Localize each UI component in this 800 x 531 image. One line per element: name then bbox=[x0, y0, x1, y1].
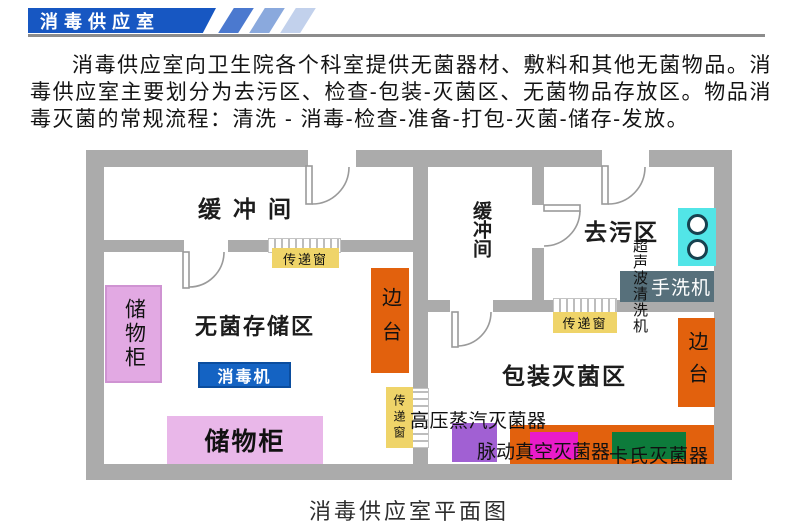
side-table-right: 边台 bbox=[678, 318, 715, 407]
banner-stripe-icon bbox=[280, 8, 316, 33]
wall-inner-a bbox=[104, 240, 184, 252]
floor-plan: 缓冲间 缓冲间 去污区 无菌存储区 包装灭菌区 储物柜 储物柜 消毒机 边台 边… bbox=[86, 150, 732, 480]
banner-stripe-icon bbox=[249, 8, 285, 33]
pass-window-top: 传递窗 bbox=[272, 248, 339, 268]
door-leaf bbox=[306, 166, 312, 204]
door-arc bbox=[458, 312, 491, 346]
pass-window-hatch bbox=[553, 298, 617, 313]
wall-top-segment bbox=[86, 150, 308, 167]
room-label-packing-sterilization: 包装灭菌区 bbox=[502, 357, 627, 391]
wall-left bbox=[86, 150, 104, 480]
banner-stripe-icon bbox=[218, 8, 254, 33]
ultrasonic-cleaner-unit bbox=[678, 208, 716, 266]
sink-basin-icon bbox=[687, 214, 708, 235]
autoclave-label: 高压蒸汽灭菌器 bbox=[410, 406, 547, 433]
room-label-buffer-mid: 缓冲间 bbox=[470, 201, 490, 279]
room-label-buffer-top: 缓冲间 bbox=[198, 190, 303, 224]
pass-window-vertical: 传递窗 bbox=[386, 387, 413, 448]
door-leaf bbox=[544, 205, 580, 211]
ultrasonic-cleaner-label: 超声波清洗机 bbox=[632, 238, 647, 393]
header-banner: 消毒供应室 bbox=[28, 8, 216, 33]
door-leaf bbox=[452, 312, 458, 347]
disinfector-machine: 消毒机 bbox=[198, 362, 291, 388]
sink-basin-icon bbox=[687, 239, 708, 260]
side-table-left: 边台 bbox=[371, 268, 409, 373]
page: 消毒供应室 消毒供应室向卫生院各个科室提供无菌器材、敷料和其他无菌物品。消毒供应… bbox=[0, 0, 800, 531]
storage-cabinet-bottom: 储物柜 bbox=[167, 416, 323, 464]
wall-inner-b bbox=[428, 300, 450, 312]
wall-top-segment bbox=[356, 150, 602, 167]
pulse-vacuum-sterilizer-label: 脉动真空灭菌器 bbox=[477, 437, 610, 464]
door-arc bbox=[608, 167, 645, 204]
intro-paragraph: 消毒供应室向卫生院各个科室提供无菌器材、敷料和其他无菌物品。消毒供应室主要划分为… bbox=[30, 52, 772, 133]
page-title: 消毒供应室 bbox=[40, 8, 160, 34]
room-label-sterile-storage: 无菌存储区 bbox=[195, 309, 315, 341]
wall-corridor-right bbox=[532, 167, 544, 205]
wall-inner-b bbox=[493, 300, 553, 312]
pass-window-mid: 传递窗 bbox=[553, 312, 617, 333]
cassette-sterilizer-label: 卡氏灭菌器 bbox=[609, 441, 709, 468]
door-arc bbox=[544, 211, 580, 246]
door-arc bbox=[312, 167, 349, 204]
wall-inner-a bbox=[341, 240, 413, 252]
header-divider bbox=[28, 34, 765, 37]
plan-caption: 消毒供应室平面图 bbox=[86, 494, 732, 526]
wall-corridor-right bbox=[532, 248, 544, 300]
door-leaf bbox=[183, 252, 189, 288]
wall-right bbox=[714, 150, 732, 480]
storage-cabinet-left: 储物柜 bbox=[105, 285, 162, 383]
wall-inner-a bbox=[228, 240, 268, 252]
door-arc bbox=[189, 252, 224, 287]
door-leaf bbox=[602, 166, 608, 204]
